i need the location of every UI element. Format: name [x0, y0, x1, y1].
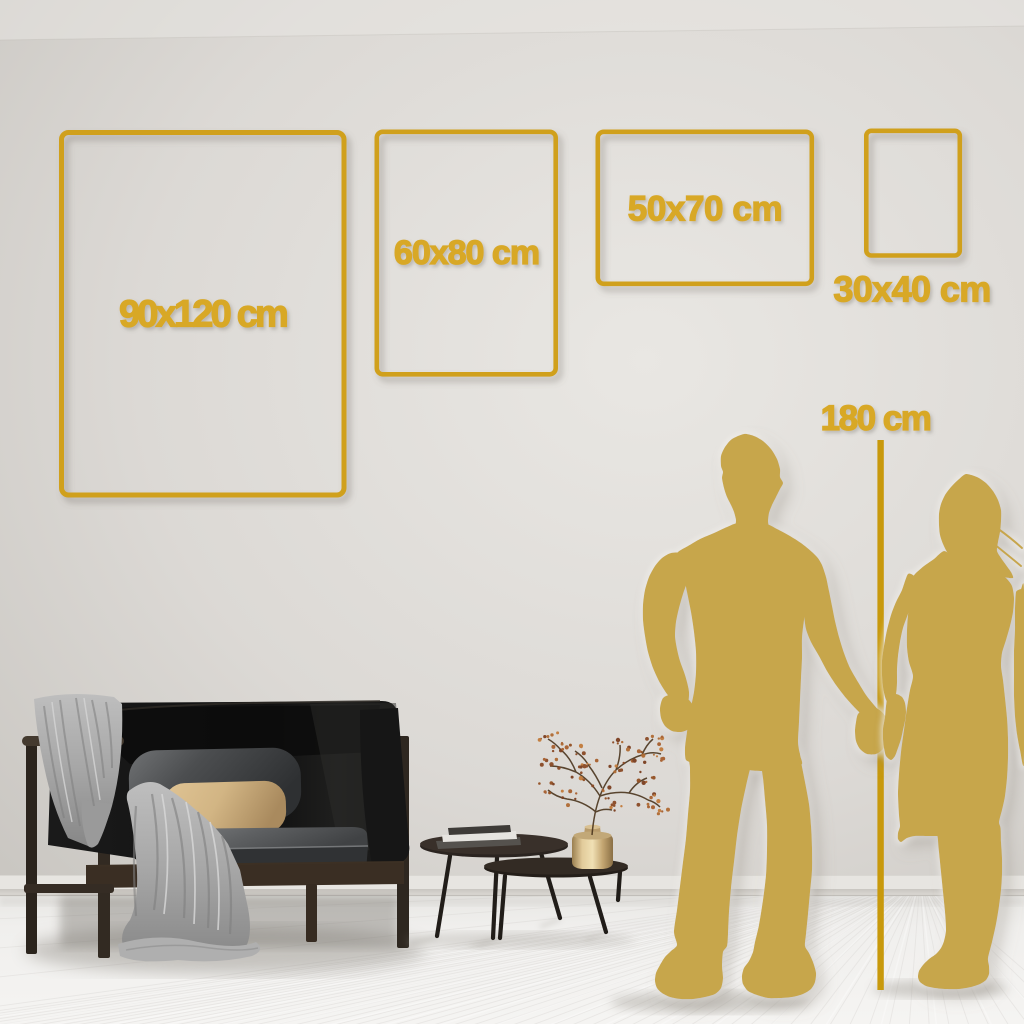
svg-text:30x40 cm: 30x40 cm: [833, 269, 990, 310]
svg-text:60x80 cm: 60x80 cm: [394, 234, 539, 272]
svg-text:180 cm: 180 cm: [821, 399, 931, 438]
svg-text:90x120 cm: 90x120 cm: [119, 294, 287, 336]
svg-text:50x70 cm: 50x70 cm: [628, 190, 782, 229]
